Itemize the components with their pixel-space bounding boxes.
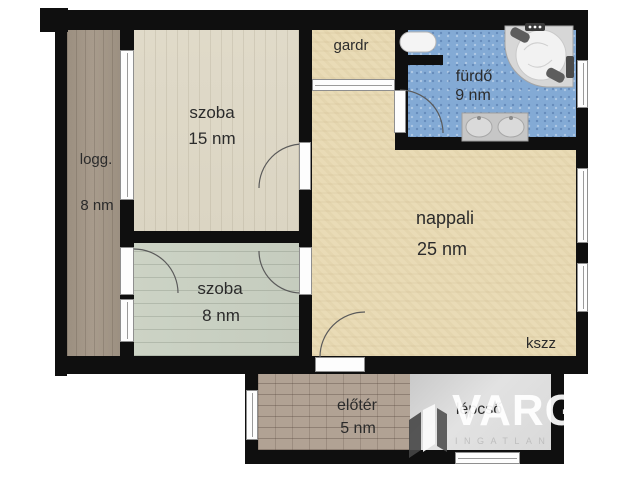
bedroom-large-label: szoba [189, 104, 234, 121]
window-loggia-bedroom-small [120, 299, 134, 342]
door-arc-bathroom [400, 90, 443, 133]
door-arc-bedroom-large [259, 144, 303, 188]
door-leaf-entry [315, 357, 365, 372]
bathroom-label: fürdő [456, 69, 492, 85]
watermark-subtext: INGATLAN [455, 436, 551, 446]
door-arc-bedroom-small-living [259, 251, 301, 293]
door-leaf-bedroom-small-living [299, 247, 312, 295]
door-arc-entry [320, 312, 365, 357]
storage-label: kszz [526, 336, 556, 351]
window-living-2 [577, 263, 588, 312]
watermark-text: VARG [452, 388, 565, 436]
window-loggia-bedroom-large [120, 50, 134, 200]
door-leaf-bathroom [394, 90, 406, 133]
living-room-area: 25 nm [417, 240, 467, 258]
loggia-label: logg. [80, 152, 113, 167]
door-leaf-bedroom-small-loggia [120, 247, 134, 295]
watermark: VARG INGATLAN [402, 388, 565, 464]
brand-logo-icon [405, 400, 451, 462]
floor-plan: logg. 8 nm szoba 15 nm szoba 8 nm gardr … [0, 0, 640, 480]
window-bathroom [577, 60, 588, 108]
door-hallway-left [246, 390, 258, 440]
bathtub-icon [400, 32, 436, 52]
door-arc-bedroom-small-loggia [134, 249, 178, 293]
window-living-1 [577, 168, 588, 243]
bathroom-area: 9 nm [455, 88, 491, 104]
door-leaf-bedroom-large [299, 142, 311, 190]
hallway-label: előtér [337, 398, 377, 414]
loggia-area: 8 nm [80, 198, 113, 213]
living-room-label: nappali [416, 209, 474, 227]
bedroom-small-label: szoba [197, 280, 242, 297]
wardrobe-label: gardr [333, 38, 368, 53]
sliding-door-wardrobe [312, 79, 395, 91]
hallway-area: 5 nm [340, 421, 376, 437]
double-sink-icon [462, 113, 528, 141]
jacuzzi-icon [505, 23, 574, 87]
bedroom-large-area: 15 nm [188, 130, 235, 147]
bedroom-small-area: 8 nm [202, 307, 240, 324]
